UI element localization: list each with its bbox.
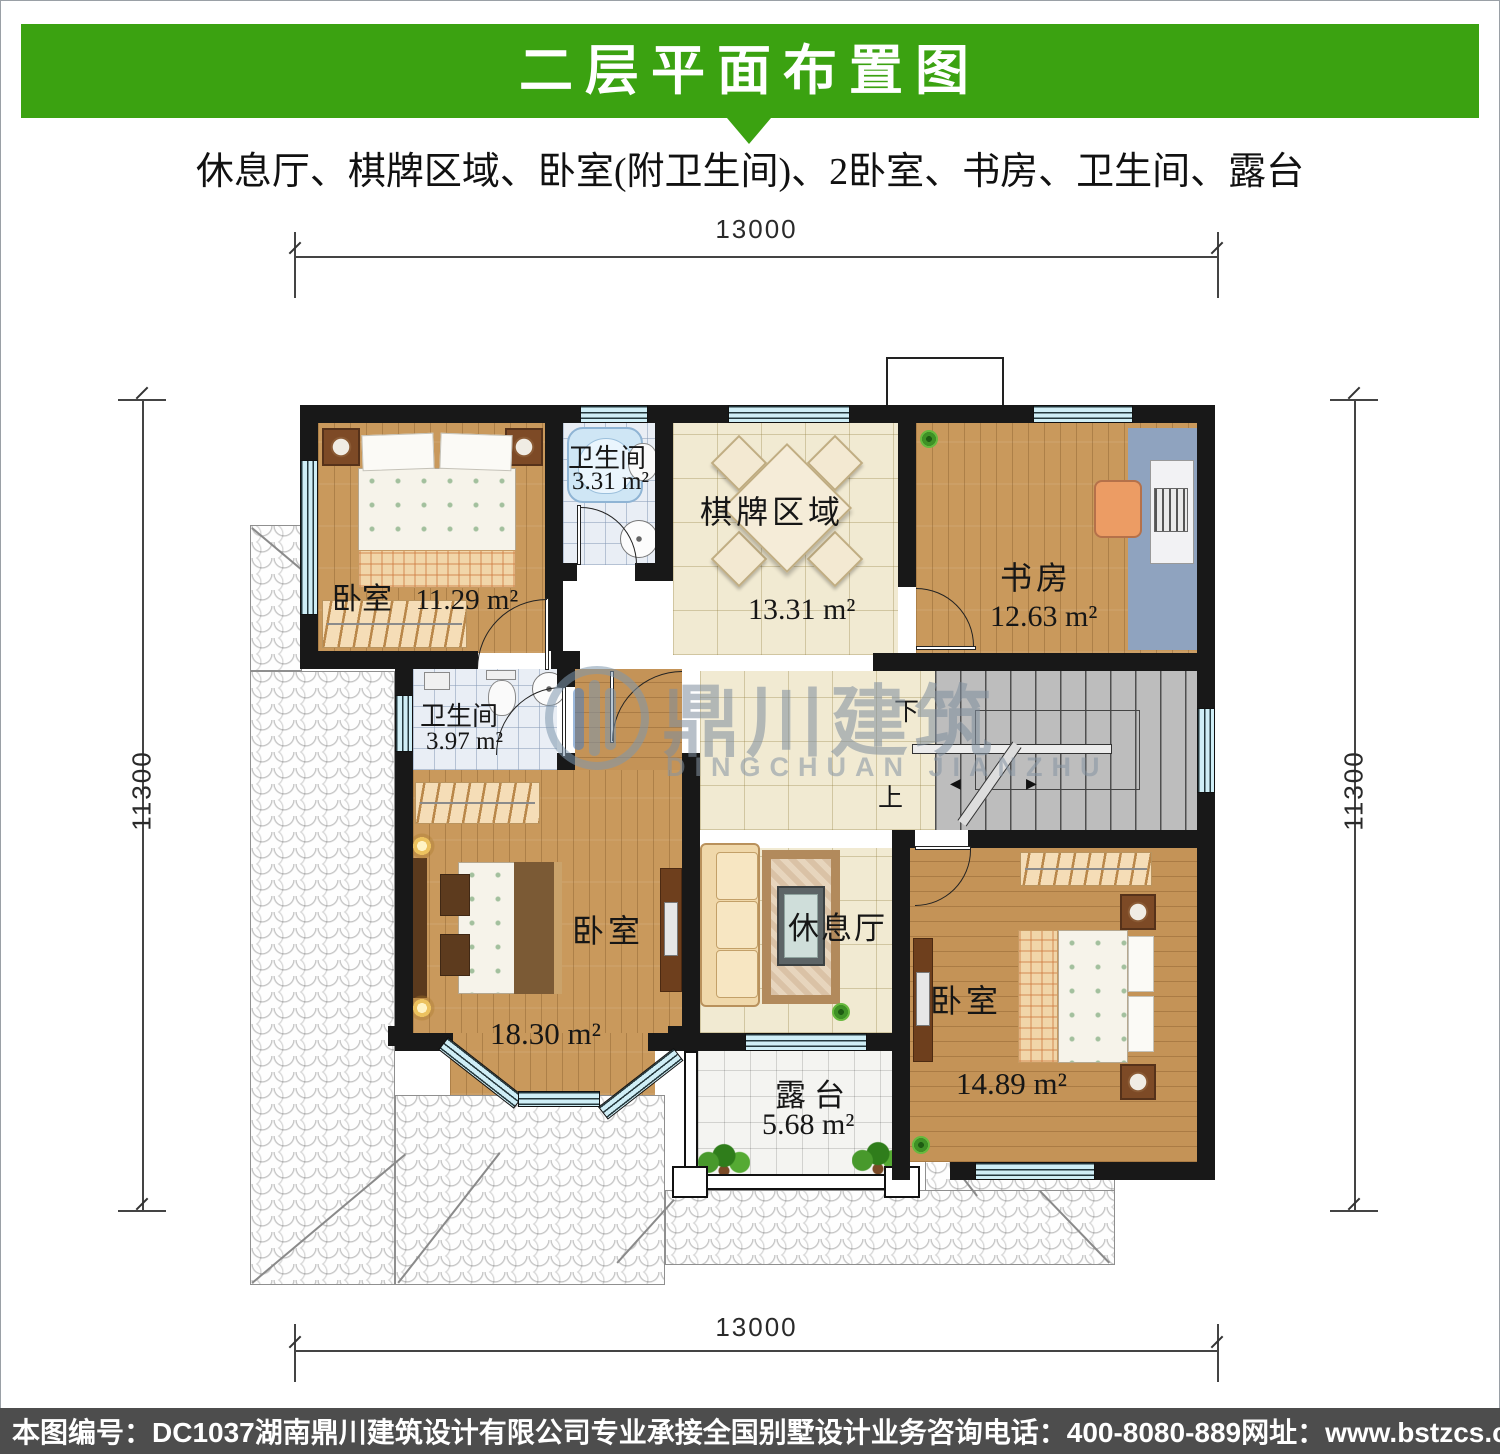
room-name: 卧室 <box>332 583 392 616</box>
dim-tick <box>1348 387 1361 400</box>
dim-ext-line <box>118 399 166 401</box>
window <box>728 405 850 423</box>
roof-area <box>250 671 395 1285</box>
room-label-bedroom-bottom-left: 卧室 <box>572 906 644 952</box>
wall <box>968 830 1197 848</box>
room-area-terrace: 5.68 m² <box>762 1108 854 1142</box>
toilet-tank <box>486 670 516 680</box>
watermark-logo-bar <box>573 688 584 750</box>
room-label-bedroom-top-left: 卧室 11.29 m² <box>332 574 518 618</box>
footer-company: 湖南鼎川建筑设计有限公司专业承接全国别墅设计业务 <box>255 1411 927 1451</box>
room-label-study: 书房 <box>1000 553 1072 599</box>
footer-phone: 咨询电话：400-8080-889 <box>927 1411 1241 1451</box>
double-bed <box>1058 930 1128 1063</box>
bath-fixture <box>424 672 450 690</box>
nightstand <box>1120 1064 1156 1100</box>
dim-bottom-label: 13000 <box>295 1312 1218 1343</box>
wall <box>655 405 673 581</box>
wardrobe <box>1020 852 1152 886</box>
roof-area <box>665 1190 1115 1265</box>
window <box>1033 405 1133 423</box>
door-leaf <box>916 646 976 650</box>
room-list-subtitle: 休息厅、棋牌区域、卧室(附卫生间)、2卧室、书房、卫生间、露台 <box>0 140 1500 195</box>
wall <box>682 753 700 1033</box>
bed-blanket <box>1018 930 1058 1063</box>
dim-top-line <box>295 256 1218 258</box>
room-label-lounge: 休息厅 <box>788 903 887 948</box>
window <box>1197 708 1215 793</box>
bed-foot <box>554 862 562 994</box>
dim-ext-line <box>1330 399 1378 401</box>
pillow <box>1128 936 1154 992</box>
floor-plan-page: 二层平面布置图 休息厅、棋牌区域、卧室(附卫生间)、2卧室、书房、卫生间、露台 … <box>0 0 1500 1454</box>
bay-window-center <box>518 1091 600 1107</box>
wall <box>300 651 478 669</box>
office-chair <box>1094 480 1142 538</box>
pillow <box>439 433 512 471</box>
watermark-logo-bar <box>605 688 616 750</box>
wall <box>551 651 580 669</box>
window <box>300 460 318 615</box>
nightstand <box>322 428 360 466</box>
bed-blanket <box>514 862 556 994</box>
terrace-sliding-door <box>745 1033 867 1051</box>
wardrobe <box>415 782 540 824</box>
terrace-railing <box>706 1174 886 1190</box>
plant-icon <box>912 1136 930 1154</box>
dim-ext-line <box>118 1210 166 1212</box>
footer-bar: 本图编号：DC1037 湖南鼎川建筑设计有限公司专业承接全国别墅设计业务 咨询电… <box>0 1408 1500 1454</box>
terrace-railing <box>684 1051 698 1171</box>
dim-right-label: 11300 <box>1339 711 1370 871</box>
room-area-bath-mid: 3.97 m² <box>426 728 503 756</box>
window <box>395 695 413 752</box>
tv-screen <box>916 972 930 1026</box>
watermark-en-text: DINGCHUAN JIANZHU <box>666 752 1109 783</box>
dim-top-label: 13000 <box>295 214 1218 245</box>
terrace-column <box>672 1166 708 1198</box>
room-area-study: 12.63 m² <box>990 600 1097 634</box>
dim-bottom-line <box>295 1350 1218 1352</box>
bay-corner-block <box>388 1026 408 1046</box>
room-label-bedroom-bottom-right: 卧室 <box>930 976 1002 1022</box>
footer-plan-number: 本图编号：DC1037 <box>12 1411 255 1451</box>
dim-tick <box>136 387 149 400</box>
computer-monitor <box>1154 488 1188 532</box>
window <box>580 405 648 423</box>
pillow <box>361 433 434 471</box>
bay-corner-block <box>668 1026 688 1046</box>
bed-headboard <box>411 858 427 998</box>
title-banner: 二层平面布置图 <box>21 24 1479 118</box>
roof-area <box>395 1095 665 1285</box>
nightstand <box>1120 894 1156 930</box>
room-area-chess-area: 13.31 m² <box>748 593 855 627</box>
sofa-cushion <box>716 852 758 900</box>
roof-projection-box <box>886 357 1004 407</box>
wall <box>563 563 577 581</box>
pillow <box>1128 996 1154 1052</box>
pillow <box>440 874 470 916</box>
room-label-chess-area: 棋牌区域 <box>700 487 844 533</box>
footer-website: 网址：www.bstzcs.com <box>1241 1411 1500 1451</box>
plant-icon <box>832 1003 850 1021</box>
wall <box>898 405 916 587</box>
watermark-logo-bar <box>589 680 600 756</box>
plant-icon <box>920 430 938 448</box>
room-area-bedroom-bottom-left: 18.30 m² <box>490 1016 601 1052</box>
dim-ext-line <box>1330 1210 1378 1212</box>
sofa-cushion <box>716 950 758 998</box>
wall <box>892 830 915 848</box>
sofa-cushion <box>716 901 758 949</box>
room-area-bath-top: 3.31 m² <box>572 468 649 496</box>
double-bed <box>358 468 516 552</box>
wall <box>892 848 910 1180</box>
dim-left-label: 11300 <box>127 711 158 871</box>
room-area-bedroom-bottom-right: 14.89 m² <box>956 1066 1067 1102</box>
page-title: 二层平面布置图 <box>21 24 1479 118</box>
pillow <box>440 934 470 976</box>
window <box>975 1162 1095 1180</box>
tv-screen <box>664 902 678 956</box>
room-area: 11.29 m² <box>416 584 519 616</box>
stair-up-label: 上 <box>878 778 903 814</box>
